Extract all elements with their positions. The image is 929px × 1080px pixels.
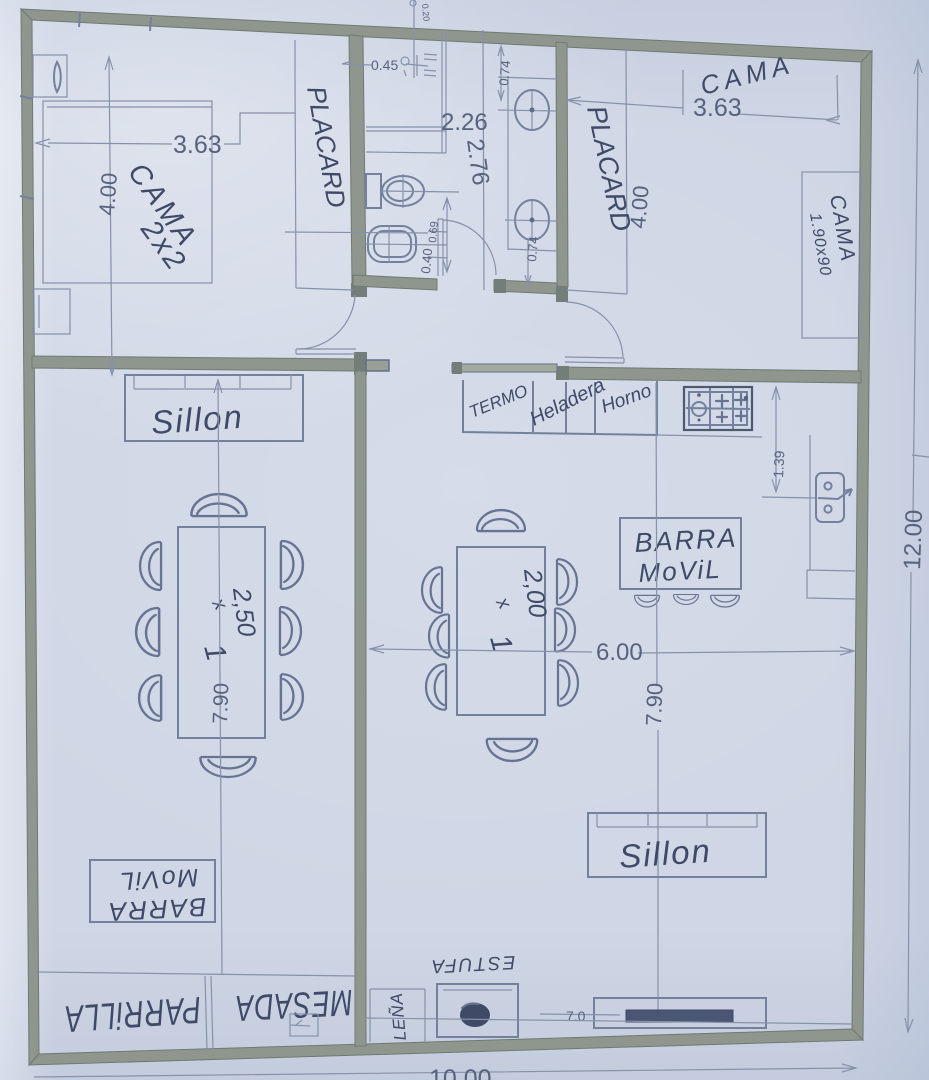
svg-text:MoViL: MoViL (117, 863, 199, 895)
svg-text:0.69: 0.69 (427, 221, 441, 243)
svg-text:Sillon: Sillon (618, 832, 713, 875)
svg-text:PLACARD: PLACARD (301, 84, 352, 210)
svg-text:2,00: 2,00 (518, 566, 552, 619)
svg-text:Heladera: Heladera (526, 374, 608, 430)
svg-text:10.00: 10.00 (429, 1065, 492, 1080)
svg-text:TERMO: TERMO (466, 381, 530, 422)
svg-text:BARRA: BARRA (634, 523, 738, 558)
svg-text:4.00: 4.00 (94, 172, 122, 216)
svg-text:0.45: 0.45 (371, 57, 398, 73)
svg-text:7.0: 7.0 (566, 1008, 586, 1024)
svg-text:MESADA: MESADA (234, 982, 354, 1029)
svg-text:PARRiLLA: PARRiLLA (63, 989, 203, 1041)
svg-text:1: 1 (197, 641, 232, 665)
svg-text:0.40: 0.40 (418, 248, 435, 275)
svg-text:MoViL: MoViL (638, 554, 723, 588)
svg-text:0.20: 0.20 (420, 3, 431, 21)
svg-text:2.76: 2.76 (461, 137, 494, 187)
svg-text:x: x (491, 593, 515, 614)
svg-text:0.74: 0.74 (496, 60, 513, 87)
svg-text:2.26: 2.26 (441, 109, 488, 136)
svg-text:LEÑA: LEÑA (387, 991, 410, 1041)
svg-text:7.90: 7.90 (209, 683, 233, 725)
svg-text:7.90: 7.90 (641, 683, 667, 727)
svg-text:12.00: 12.00 (899, 509, 928, 570)
svg-text:6.00: 6.00 (596, 639, 643, 666)
svg-text:4.00: 4.00 (625, 185, 654, 230)
svg-text:0.74: 0.74 (524, 236, 541, 263)
svg-text:1: 1 (483, 632, 518, 656)
svg-text:BARRA: BARRA (106, 892, 207, 927)
svg-text:Sillon: Sillon (150, 398, 245, 441)
svg-text:2,50: 2,50 (227, 585, 261, 638)
svg-text:Horno: Horno (599, 380, 655, 417)
svg-text:3.63: 3.63 (693, 94, 742, 122)
svg-text:ESTUFA: ESTUFA (429, 951, 516, 976)
svg-text:1.39: 1.39 (770, 450, 787, 478)
svg-text:3.63: 3.63 (173, 131, 222, 159)
